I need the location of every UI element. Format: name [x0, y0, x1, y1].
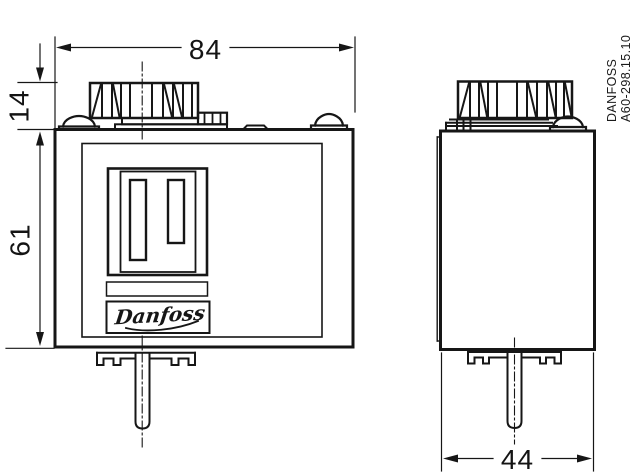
front-bottom-bracket [97, 353, 195, 365]
dimension-label-depth-44: 44 [494, 445, 541, 473]
drawing-linework [0, 0, 640, 473]
dimension-label-knob-height-14: 14 [5, 84, 35, 129]
brand-name-text: DANFOSS [606, 18, 620, 122]
dimension-label-body-height-61: 61 [6, 218, 36, 263]
danfoss-logo-script: Danfoss [110, 301, 210, 332]
front-view [55, 83, 353, 429]
dimension-lines [6, 37, 594, 471]
dimension-arrowheads [36, 44, 592, 463]
part-number-text: A60-298.15.10 [620, 18, 634, 122]
part-number-vertical-text: DANFOSS A60-298.15.10 [606, 18, 634, 122]
technical-drawing-canvas: 84 14 61 44 DANFOSS A60-298.15.10 Danfos… [0, 0, 640, 473]
dimension-label-width-84: 84 [183, 35, 228, 65]
side-view [437, 82, 594, 429]
